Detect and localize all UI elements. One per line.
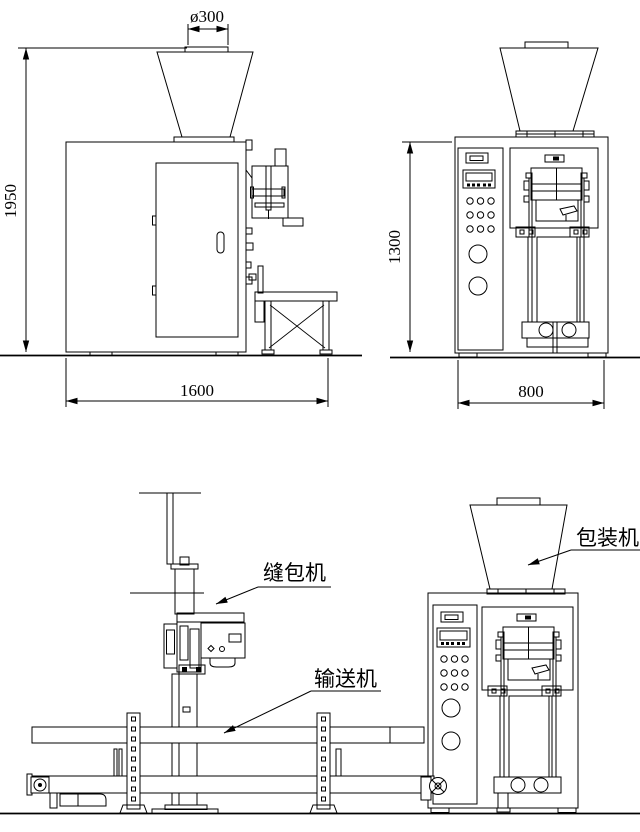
keypad — [467, 198, 494, 232]
side-bag-bench — [255, 292, 337, 354]
front-weighing-unit — [510, 148, 598, 353]
dim-front-width: 800 — [458, 360, 604, 409]
label-packing-machine: 包装机 — [576, 526, 639, 550]
side-view: ø300 1950 1600 — [0, 7, 362, 407]
front-view: 1300 800 — [385, 42, 640, 409]
assembly-view: 缝包机 输送机 包装机 — [0, 493, 640, 814]
conveyor-end-roller — [421, 777, 447, 800]
dim-hopper-diameter-text: ø300 — [190, 7, 224, 26]
dim-overall-height: 1950 — [1, 48, 187, 352]
dim-height-1300-text: 1300 — [385, 230, 404, 264]
dim-width-1600-text: 1600 — [180, 381, 214, 400]
control-knob — [469, 245, 487, 263]
label-sewing-machine: 缝包机 — [263, 561, 326, 585]
dim-overall-depth: 1600 — [66, 358, 328, 407]
dim-hopper-diameter: ø300 — [188, 7, 228, 45]
assembly-packing-machine — [428, 498, 578, 813]
front-hopper — [500, 42, 598, 137]
dim-width-800-text: 800 — [518, 382, 544, 401]
control-knob — [469, 277, 487, 295]
side-door — [153, 163, 239, 337]
front-control-panel — [458, 148, 503, 350]
assembly-conveyor — [27, 713, 447, 813]
engineering-drawing-canvas: ø300 1950 1600 — [0, 0, 640, 832]
side-hopper — [157, 47, 253, 142]
callout-sewing-machine: 缝包机 — [216, 561, 331, 604]
side-bag-clamp-mechanism — [246, 140, 303, 293]
door-handle — [217, 232, 224, 253]
power-switch — [466, 153, 488, 163]
callout-conveyor: 输送机 — [224, 667, 381, 733]
assembly-sewing-stand — [130, 493, 245, 814]
callout-packing-machine: 包装机 — [528, 526, 640, 565]
engineering-drawing-page: ø300 1950 1600 — [0, 0, 640, 832]
dim-front-height: 1300 — [385, 142, 452, 352]
sewing-machine-head — [164, 613, 245, 674]
dim-height-1950-text: 1950 — [1, 184, 20, 218]
label-conveyor: 输送机 — [314, 667, 377, 691]
